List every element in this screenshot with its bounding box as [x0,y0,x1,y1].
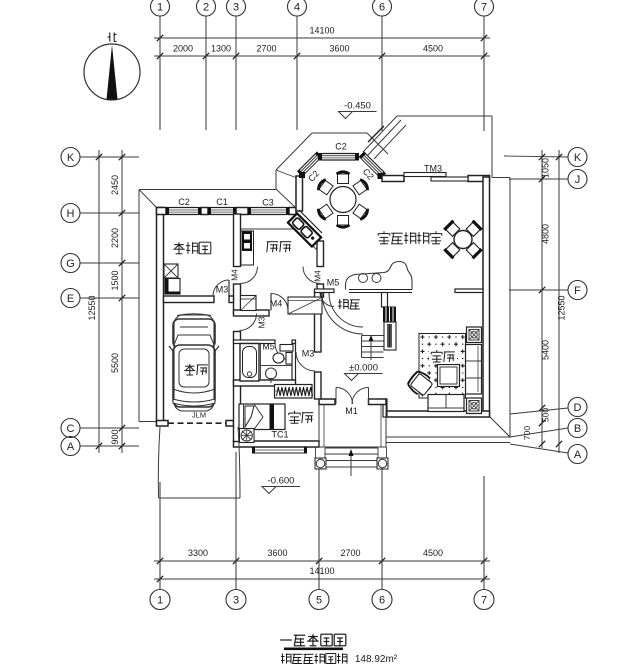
svg-text:E: E [67,293,74,305]
svg-text:M3: M3 [302,349,315,359]
svg-text:C2: C2 [178,197,190,207]
svg-text:1500: 1500 [110,270,120,290]
svg-text:6: 6 [379,594,385,606]
svg-text:M5: M5 [262,342,275,352]
svg-text:5500: 5500 [110,353,120,373]
svg-text:2000: 2000 [173,44,193,54]
svg-text:2: 2 [203,1,209,13]
svg-text:M3: M3 [216,285,229,295]
svg-text:D: D [574,402,582,414]
svg-text:C2: C2 [335,142,347,152]
svg-text:14100: 14100 [309,566,334,576]
svg-text:F: F [574,285,581,297]
svg-text:2700: 2700 [256,44,276,54]
svg-text:4: 4 [294,1,300,13]
svg-text:6: 6 [379,1,385,13]
svg-text:7: 7 [481,1,487,13]
svg-text:A: A [67,441,75,453]
svg-text:C3: C3 [262,198,274,208]
svg-text:-0.450: -0.450 [344,101,371,112]
svg-text:4500: 4500 [423,44,443,54]
svg-text:1: 1 [157,1,163,13]
svg-text:2450: 2450 [110,175,120,195]
svg-text:1050: 1050 [541,158,551,178]
svg-text:K: K [574,152,582,164]
svg-text:4800: 4800 [541,224,551,244]
svg-text:K: K [67,152,75,164]
svg-text:M1: M1 [345,406,358,416]
svg-text:148.92m²: 148.92m² [355,654,398,665]
svg-text:M3: M3 [257,316,267,328]
svg-text:5400: 5400 [541,340,551,360]
svg-text:1: 1 [157,594,163,606]
svg-text:4500: 4500 [423,548,443,558]
svg-text:3300: 3300 [188,548,208,558]
svg-text:：: ： [343,654,352,664]
svg-text:C1: C1 [216,197,228,207]
svg-text:3: 3 [233,1,239,13]
svg-text:14100: 14100 [309,26,334,36]
svg-text:TM3: TM3 [424,164,442,174]
svg-text:J: J [575,174,581,186]
svg-text:7: 7 [481,594,487,606]
svg-text:H: H [67,208,75,220]
svg-text:1300: 1300 [211,44,231,54]
svg-text:M4: M4 [230,269,240,281]
svg-text:3: 3 [233,594,239,606]
svg-text:3600: 3600 [267,548,287,558]
svg-text:12550: 12550 [557,295,567,320]
svg-text:M4: M4 [270,299,283,309]
svg-text:5: 5 [316,594,322,606]
svg-text:3600: 3600 [329,44,349,54]
svg-text:M5: M5 [327,278,340,288]
svg-text:JLM: JLM [192,411,206,420]
svg-text:B: B [574,423,581,435]
svg-text:TC1: TC1 [271,430,288,440]
svg-text:500: 500 [541,408,551,422]
svg-text:2200: 2200 [110,228,120,248]
svg-text:2700: 2700 [340,548,360,558]
svg-text:900: 900 [110,429,120,444]
svg-text:M4: M4 [313,270,323,282]
svg-text:-0.600: -0.600 [268,476,295,487]
svg-text:700: 700 [522,426,532,440]
svg-text:12550: 12550 [87,295,97,320]
svg-text:±0.000: ±0.000 [349,363,378,374]
svg-text:C: C [67,423,75,435]
svg-text:G: G [66,258,75,270]
svg-text:A: A [574,449,582,461]
